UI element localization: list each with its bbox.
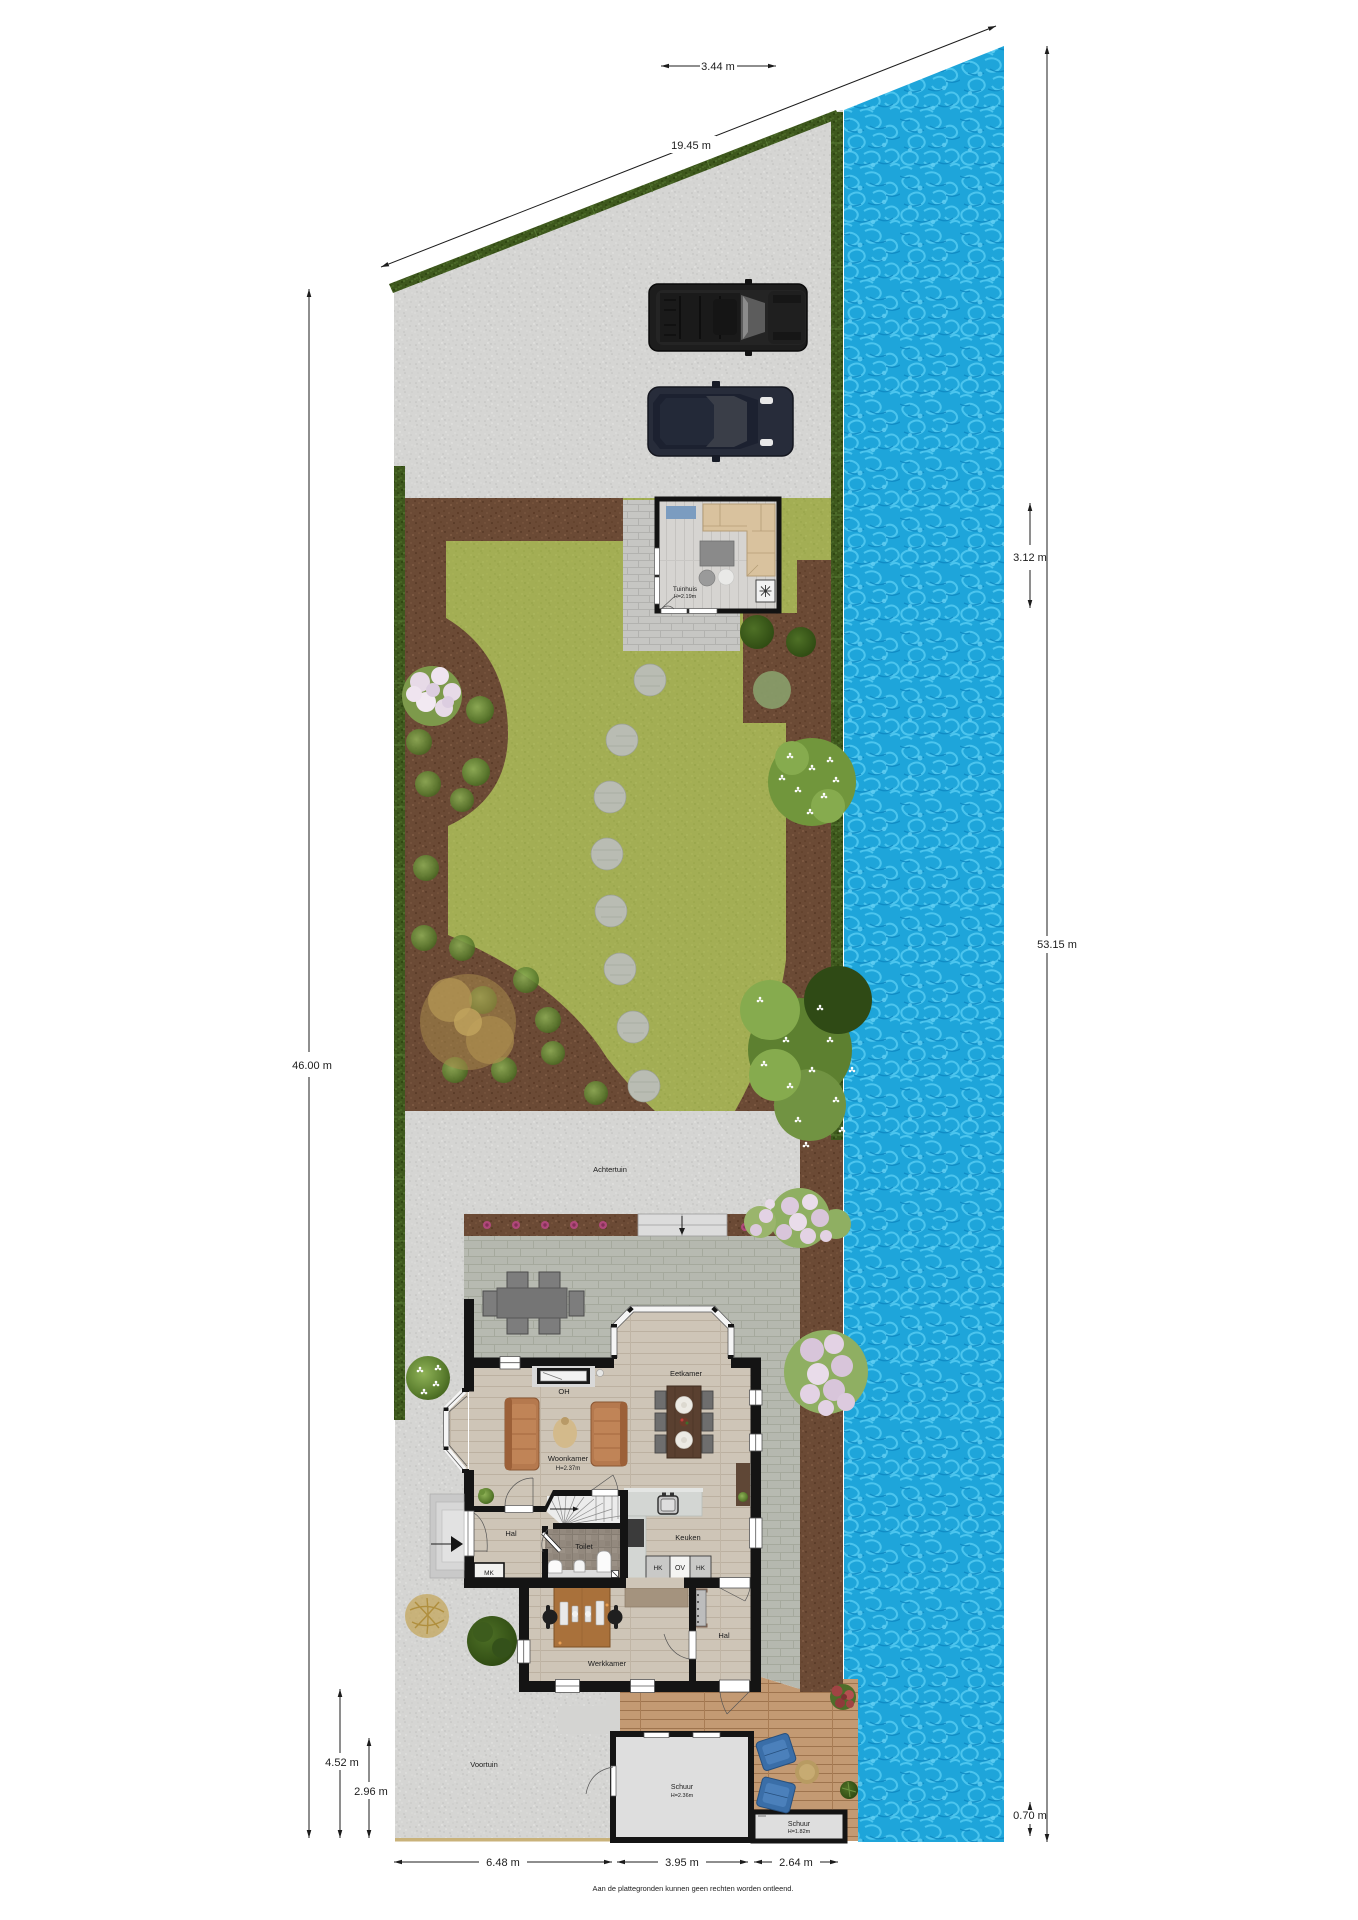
svg-text:H=1.82m: H=1.82m <box>788 1829 811 1835</box>
svg-text:3.44 m: 3.44 m <box>701 61 735 73</box>
svg-text:3.95 m: 3.95 m <box>665 1857 699 1869</box>
svg-text:HK: HK <box>653 1565 663 1572</box>
svg-text:Aan de plattegronden kunnen ge: Aan de plattegronden kunnen geen rechten… <box>593 1884 794 1893</box>
svg-text:H=2.36m: H=2.36m <box>671 1793 694 1799</box>
svg-text:Eetkamer: Eetkamer <box>670 1369 703 1378</box>
svg-text:46.00 m: 46.00 m <box>292 1060 332 1072</box>
svg-text:53.15 m: 53.15 m <box>1037 939 1077 951</box>
svg-text:MK: MK <box>484 1570 494 1577</box>
svg-text:Hal: Hal <box>505 1529 517 1538</box>
svg-text:6.48 m: 6.48 m <box>486 1857 520 1869</box>
svg-text:OH: OH <box>558 1387 569 1396</box>
svg-text:H=2.19m: H=2.19m <box>674 594 697 600</box>
svg-text:0.70 m: 0.70 m <box>1013 1810 1047 1822</box>
svg-text:Achtertuin: Achtertuin <box>593 1165 627 1174</box>
svg-text:19.45 m: 19.45 m <box>671 140 711 152</box>
svg-text:Hal: Hal <box>718 1631 730 1640</box>
svg-text:Woonkamer: Woonkamer <box>548 1454 589 1463</box>
svg-text:2.96 m: 2.96 m <box>354 1786 388 1798</box>
svg-text:H=2.37m: H=2.37m <box>556 1466 581 1472</box>
svg-text:4.52 m: 4.52 m <box>325 1757 359 1769</box>
svg-text:Schuur: Schuur <box>671 1784 694 1791</box>
svg-text:Werkkamer: Werkkamer <box>588 1659 627 1668</box>
svg-text:Tuinhuis: Tuinhuis <box>673 586 698 593</box>
svg-text:OV: OV <box>675 1565 685 1572</box>
svg-text:Schuur: Schuur <box>788 1821 811 1828</box>
svg-text:Keuken: Keuken <box>675 1533 700 1542</box>
svg-text:HK: HK <box>696 1565 706 1572</box>
svg-text:Voortuin: Voortuin <box>470 1760 498 1769</box>
svg-text:Toilet: Toilet <box>575 1542 593 1551</box>
svg-text:3.12 m: 3.12 m <box>1013 552 1047 564</box>
svg-text:2.64 m: 2.64 m <box>779 1857 813 1869</box>
